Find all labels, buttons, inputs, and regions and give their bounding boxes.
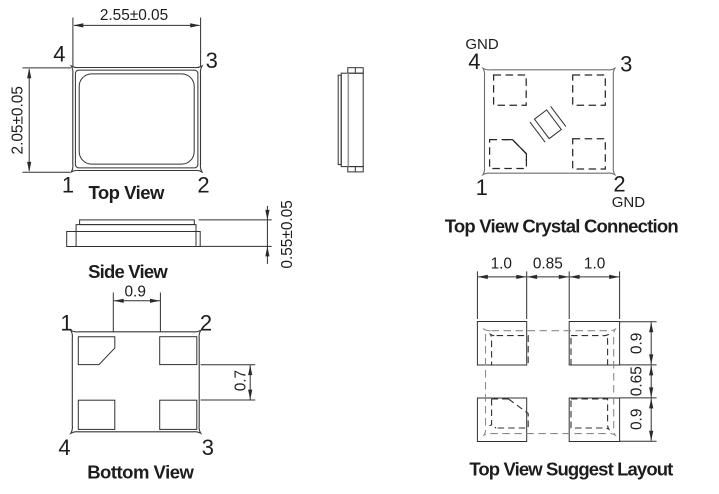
svg-text:3: 3 <box>206 48 218 73</box>
svg-text:4: 4 <box>53 41 65 66</box>
svg-text:0.9: 0.9 <box>629 333 646 354</box>
svg-text:GND: GND <box>612 194 646 211</box>
svg-text:1: 1 <box>476 175 488 200</box>
svg-text:3: 3 <box>202 435 214 460</box>
svg-text:1.0: 1.0 <box>491 255 512 272</box>
svg-text:Top View Suggest Layout: Top View Suggest Layout <box>469 459 673 480</box>
svg-text:0.65: 0.65 <box>629 366 646 396</box>
svg-text:1: 1 <box>62 173 74 198</box>
svg-text:0.55±0.05: 0.55±0.05 <box>279 200 296 268</box>
svg-text:0.7: 0.7 <box>232 370 249 391</box>
svg-text:2: 2 <box>613 171 625 196</box>
svg-text:Top View: Top View <box>88 182 165 203</box>
svg-text:0.9: 0.9 <box>124 284 145 301</box>
svg-text:Side View: Side View <box>88 261 168 282</box>
svg-text:2.05±0.05: 2.05±0.05 <box>10 86 27 154</box>
svg-text:1.0: 1.0 <box>584 255 605 272</box>
svg-text:Bottom View: Bottom View <box>87 461 194 482</box>
svg-text:4: 4 <box>58 435 70 460</box>
svg-text:4: 4 <box>468 49 480 74</box>
svg-text:1: 1 <box>60 311 72 336</box>
svg-text:Top View Crystal Connection: Top View Crystal Connection <box>445 216 679 237</box>
svg-text:0.9: 0.9 <box>629 409 646 430</box>
svg-text:2.55±0.05: 2.55±0.05 <box>100 7 168 24</box>
svg-text:2: 2 <box>200 311 212 336</box>
svg-text:2: 2 <box>197 173 209 198</box>
svg-text:3: 3 <box>620 51 632 76</box>
svg-text:0.85: 0.85 <box>533 255 563 272</box>
